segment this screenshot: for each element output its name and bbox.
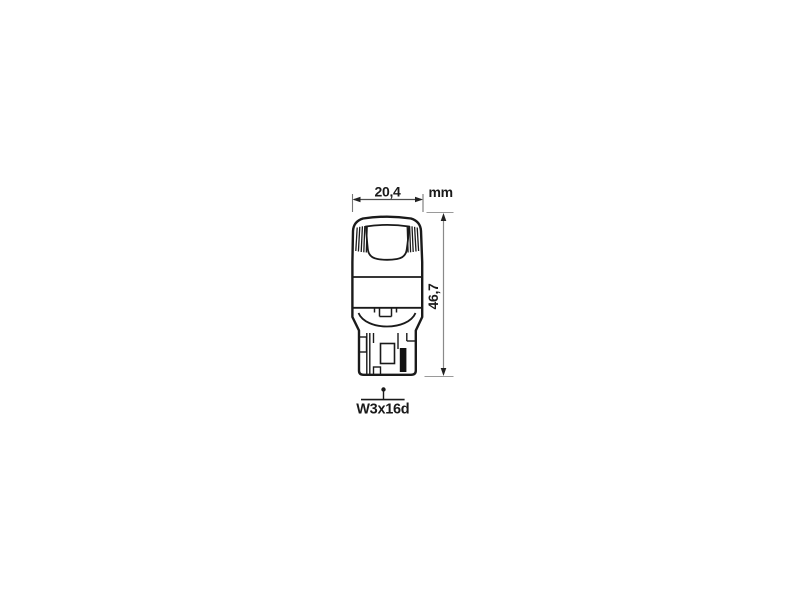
base-type-callout: W3x16d <box>356 387 409 417</box>
lens <box>366 225 409 260</box>
arrowhead-up-icon <box>441 213 447 221</box>
width-dimension: 20,4 mm <box>353 184 453 213</box>
fin-line <box>407 226 408 253</box>
height-dimension: 46,7 <box>425 213 454 377</box>
arrowhead-left-icon <box>353 197 361 203</box>
bulb-drawing <box>352 217 422 375</box>
unit-label: mm <box>429 184 453 200</box>
arrowhead-down-icon <box>441 368 447 376</box>
fin-line <box>366 226 367 253</box>
contact-strip <box>400 348 407 372</box>
bulb-technical-drawing: 20,4 mm 46,7 <box>0 0 800 600</box>
leader-dot-icon <box>381 387 385 391</box>
base-type-label: W3x16d <box>356 402 409 418</box>
arrowhead-right-icon <box>415 197 423 203</box>
diagram-canvas: 20,4 mm 46,7 <box>0 0 800 600</box>
height-value-label: 46,7 <box>425 283 441 310</box>
width-value-label: 20,4 <box>374 184 401 200</box>
